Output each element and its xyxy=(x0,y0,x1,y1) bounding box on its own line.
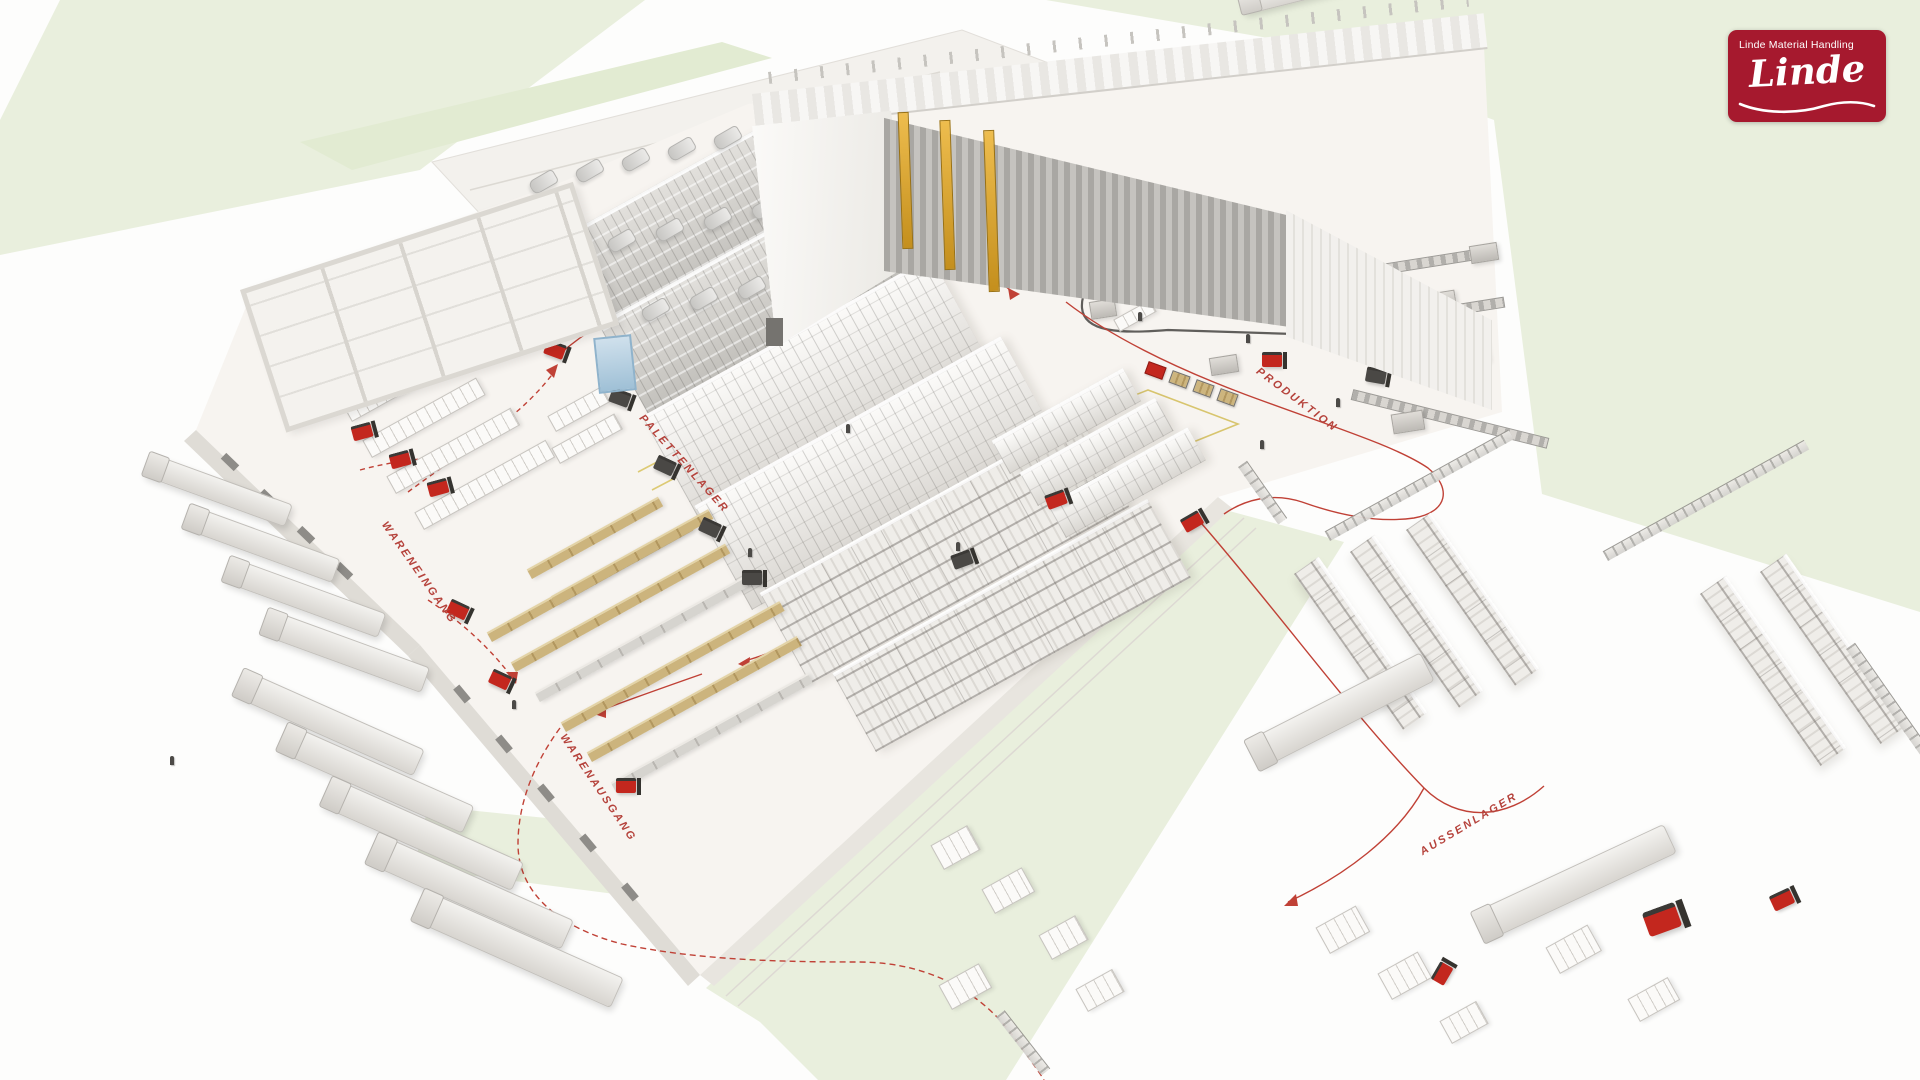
worker-figure xyxy=(1138,312,1142,321)
worker-figure xyxy=(956,542,960,551)
linde-swash xyxy=(1736,98,1878,116)
worker-figure xyxy=(170,756,174,765)
linde-wordmark: Linde xyxy=(1727,47,1887,95)
worker-figure xyxy=(1246,334,1250,343)
worker-figure xyxy=(1336,398,1340,407)
warehouse-overview-illustration: PALETTENLAGER WARENEINGANG PRODUKTION WA… xyxy=(0,0,1920,1080)
forklift-red-icon xyxy=(616,778,636,793)
forklift-mast xyxy=(1283,352,1287,369)
worker-figure xyxy=(1260,440,1264,449)
hall-door xyxy=(766,318,783,346)
worker-figure xyxy=(512,700,516,709)
vna-aisle-panel xyxy=(593,334,637,394)
forklift-mast xyxy=(637,778,641,795)
forklift-red-icon xyxy=(1262,352,1282,367)
worker-figure xyxy=(846,424,850,433)
linde-logo: Linde Material Handling Linde xyxy=(1728,30,1886,122)
worker-figure xyxy=(748,548,752,557)
forklift-dark-icon xyxy=(742,570,762,585)
forklift-mast xyxy=(763,570,767,587)
